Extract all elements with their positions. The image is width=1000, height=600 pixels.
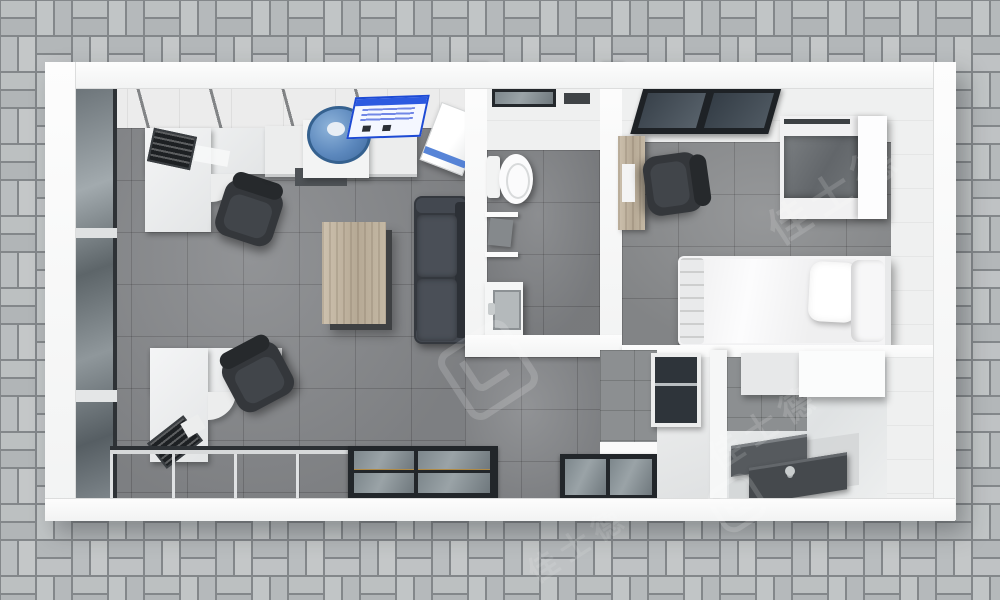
utility-gray-wall-face	[600, 350, 657, 442]
chair-seat	[649, 161, 690, 209]
poster-mark	[382, 125, 391, 131]
toilet-bowl	[499, 154, 533, 204]
window-b	[560, 454, 657, 500]
glass-wall-mullion	[75, 390, 117, 402]
glazed-wall-bottom-left	[110, 450, 350, 502]
bed-foot-panel	[680, 258, 704, 344]
wardrobe	[780, 116, 887, 219]
wall-shelf-lower	[485, 252, 518, 257]
wall-cabinet-left	[741, 353, 799, 395]
single-bed	[678, 256, 891, 346]
bathroom-left-wall	[465, 62, 487, 357]
window-b-pane	[565, 459, 606, 495]
poster-mark	[362, 126, 371, 132]
coffee-table	[322, 222, 386, 324]
sink-faucet	[785, 466, 795, 476]
outer-wall-left	[45, 62, 76, 520]
window-a-pane	[354, 473, 414, 493]
bathroom-window	[492, 89, 556, 107]
outer-wall-bottom	[45, 498, 955, 521]
window-b-pane	[610, 459, 652, 495]
outer-wall-right	[933, 62, 956, 520]
window-a-pane	[418, 451, 490, 470]
bedroom-right-wall-face	[891, 86, 933, 345]
ceiling-vent	[564, 93, 590, 104]
vanity-basin	[493, 290, 521, 330]
poster-header-bar	[355, 97, 427, 106]
toilet-seat-ring	[506, 163, 530, 199]
window-a-pane	[418, 473, 490, 493]
water-cooler-cap	[327, 122, 345, 136]
bedroom-ceiling-window	[630, 87, 781, 134]
chair-seat	[222, 192, 275, 241]
sofa-cushion	[417, 279, 457, 341]
window-a	[348, 446, 498, 498]
wardrobe-top-slit	[784, 119, 850, 124]
vanity-faucet	[488, 303, 495, 315]
poster-text-lines	[360, 107, 415, 123]
floorplan-render: 佳士德 佳士德 佳士德	[0, 0, 1000, 600]
bed-headboard	[885, 256, 891, 346]
outer-wall-top	[45, 62, 955, 89]
glass-wall-left	[75, 86, 117, 498]
glass-wall-mullion	[75, 228, 117, 238]
shelf-item	[488, 218, 514, 247]
vestibule-window-mullion	[655, 383, 697, 386]
vanity-cabinet	[485, 282, 523, 336]
sofa-cushion	[417, 215, 457, 277]
wall-cabinet-right	[799, 351, 885, 397]
bedroom-desk-pad	[622, 164, 635, 202]
wardrobe-front-panel	[858, 116, 887, 219]
notice-poster	[346, 95, 430, 140]
floor-plan	[45, 62, 955, 520]
wall-shelf-upper	[485, 212, 518, 217]
bathroom-bottom-wall	[465, 335, 622, 357]
partition-wall	[710, 350, 727, 500]
vestibule-window	[651, 353, 701, 427]
bedroom-window-pane	[704, 93, 774, 128]
folded-duvet	[851, 260, 885, 342]
sofa	[414, 196, 470, 344]
wardrobe-open-shelf	[784, 136, 858, 198]
kitchen-right-wall-face	[887, 357, 933, 500]
window-a-pane	[354, 451, 414, 470]
bedroom-window-pane	[638, 93, 706, 128]
bathroom-window-pane	[495, 92, 553, 104]
bedroom-office-chair	[641, 150, 705, 217]
